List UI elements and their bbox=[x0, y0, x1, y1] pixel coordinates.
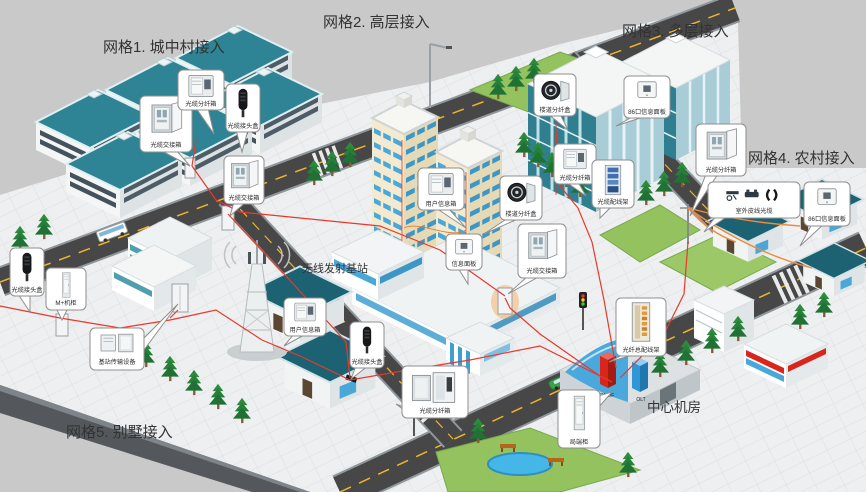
callout-label: 楼道分纤盒 bbox=[506, 210, 538, 218]
central-office-title: 中心机房 bbox=[647, 400, 701, 415]
diagram-canvas: OMDF OLT bbox=[0, 0, 866, 492]
callout-label: 光缆交接箱 bbox=[151, 141, 182, 149]
pond bbox=[488, 453, 552, 475]
callout-label: 光缆分纤箱 bbox=[706, 166, 737, 174]
grid1-title: 网格1. 城中村接入 bbox=[103, 39, 225, 56]
grid2-title: 网格2. 高层接入 bbox=[323, 14, 430, 31]
callout-label: 光缆分纤箱 bbox=[420, 407, 451, 415]
callout-label: 光缆接头盒 bbox=[352, 358, 384, 366]
callout-label: 楼道分纤盒 bbox=[540, 106, 572, 114]
callout-label: 86口信息面板 bbox=[808, 215, 846, 223]
callout-label: 光缆配线架 bbox=[598, 198, 629, 206]
callout-label: 光缆分纤箱 bbox=[560, 174, 591, 182]
callout-label: 室外皮线光缆 bbox=[735, 207, 772, 215]
callout-label: 光缆接头盒 bbox=[228, 122, 260, 130]
grid5-title: 网格5. 别墅接入 bbox=[66, 424, 173, 441]
callout-co-odf: 光纤总配线架 bbox=[609, 298, 666, 362]
callout-label: 基站传输设备 bbox=[98, 358, 136, 366]
callout-label: 光缆接头盒 bbox=[12, 286, 44, 294]
callout-label: 光缆交接箱 bbox=[229, 194, 260, 202]
grid3-title: 网格3. 多层接入 bbox=[622, 23, 729, 40]
callout-label: M+机柜 bbox=[55, 299, 76, 307]
callout-label: 光缆分纤箱 bbox=[186, 100, 217, 108]
office-right bbox=[694, 286, 754, 352]
base-station-title: 无线发射基站 bbox=[302, 261, 368, 275]
callout-label: 光缆交接箱 bbox=[527, 267, 558, 275]
callout-label: 局端柜 bbox=[570, 438, 589, 446]
callout-label: 信息面板 bbox=[452, 260, 477, 268]
callout-label: 86口信息面板 bbox=[628, 108, 666, 116]
network-topology-diagram: OMDF OLT bbox=[0, 0, 866, 492]
callout-label: 用户信息箱 bbox=[426, 200, 457, 208]
olt-label: OLT bbox=[636, 397, 645, 403]
grid4-title: 网格4. 农村接入 bbox=[748, 150, 855, 167]
callout-label: 光纤总配线架 bbox=[622, 346, 659, 354]
callout-label: 用户信息箱 bbox=[290, 326, 321, 334]
callout-grid5-dist-box: 光缆分纤箱 bbox=[396, 366, 468, 418]
